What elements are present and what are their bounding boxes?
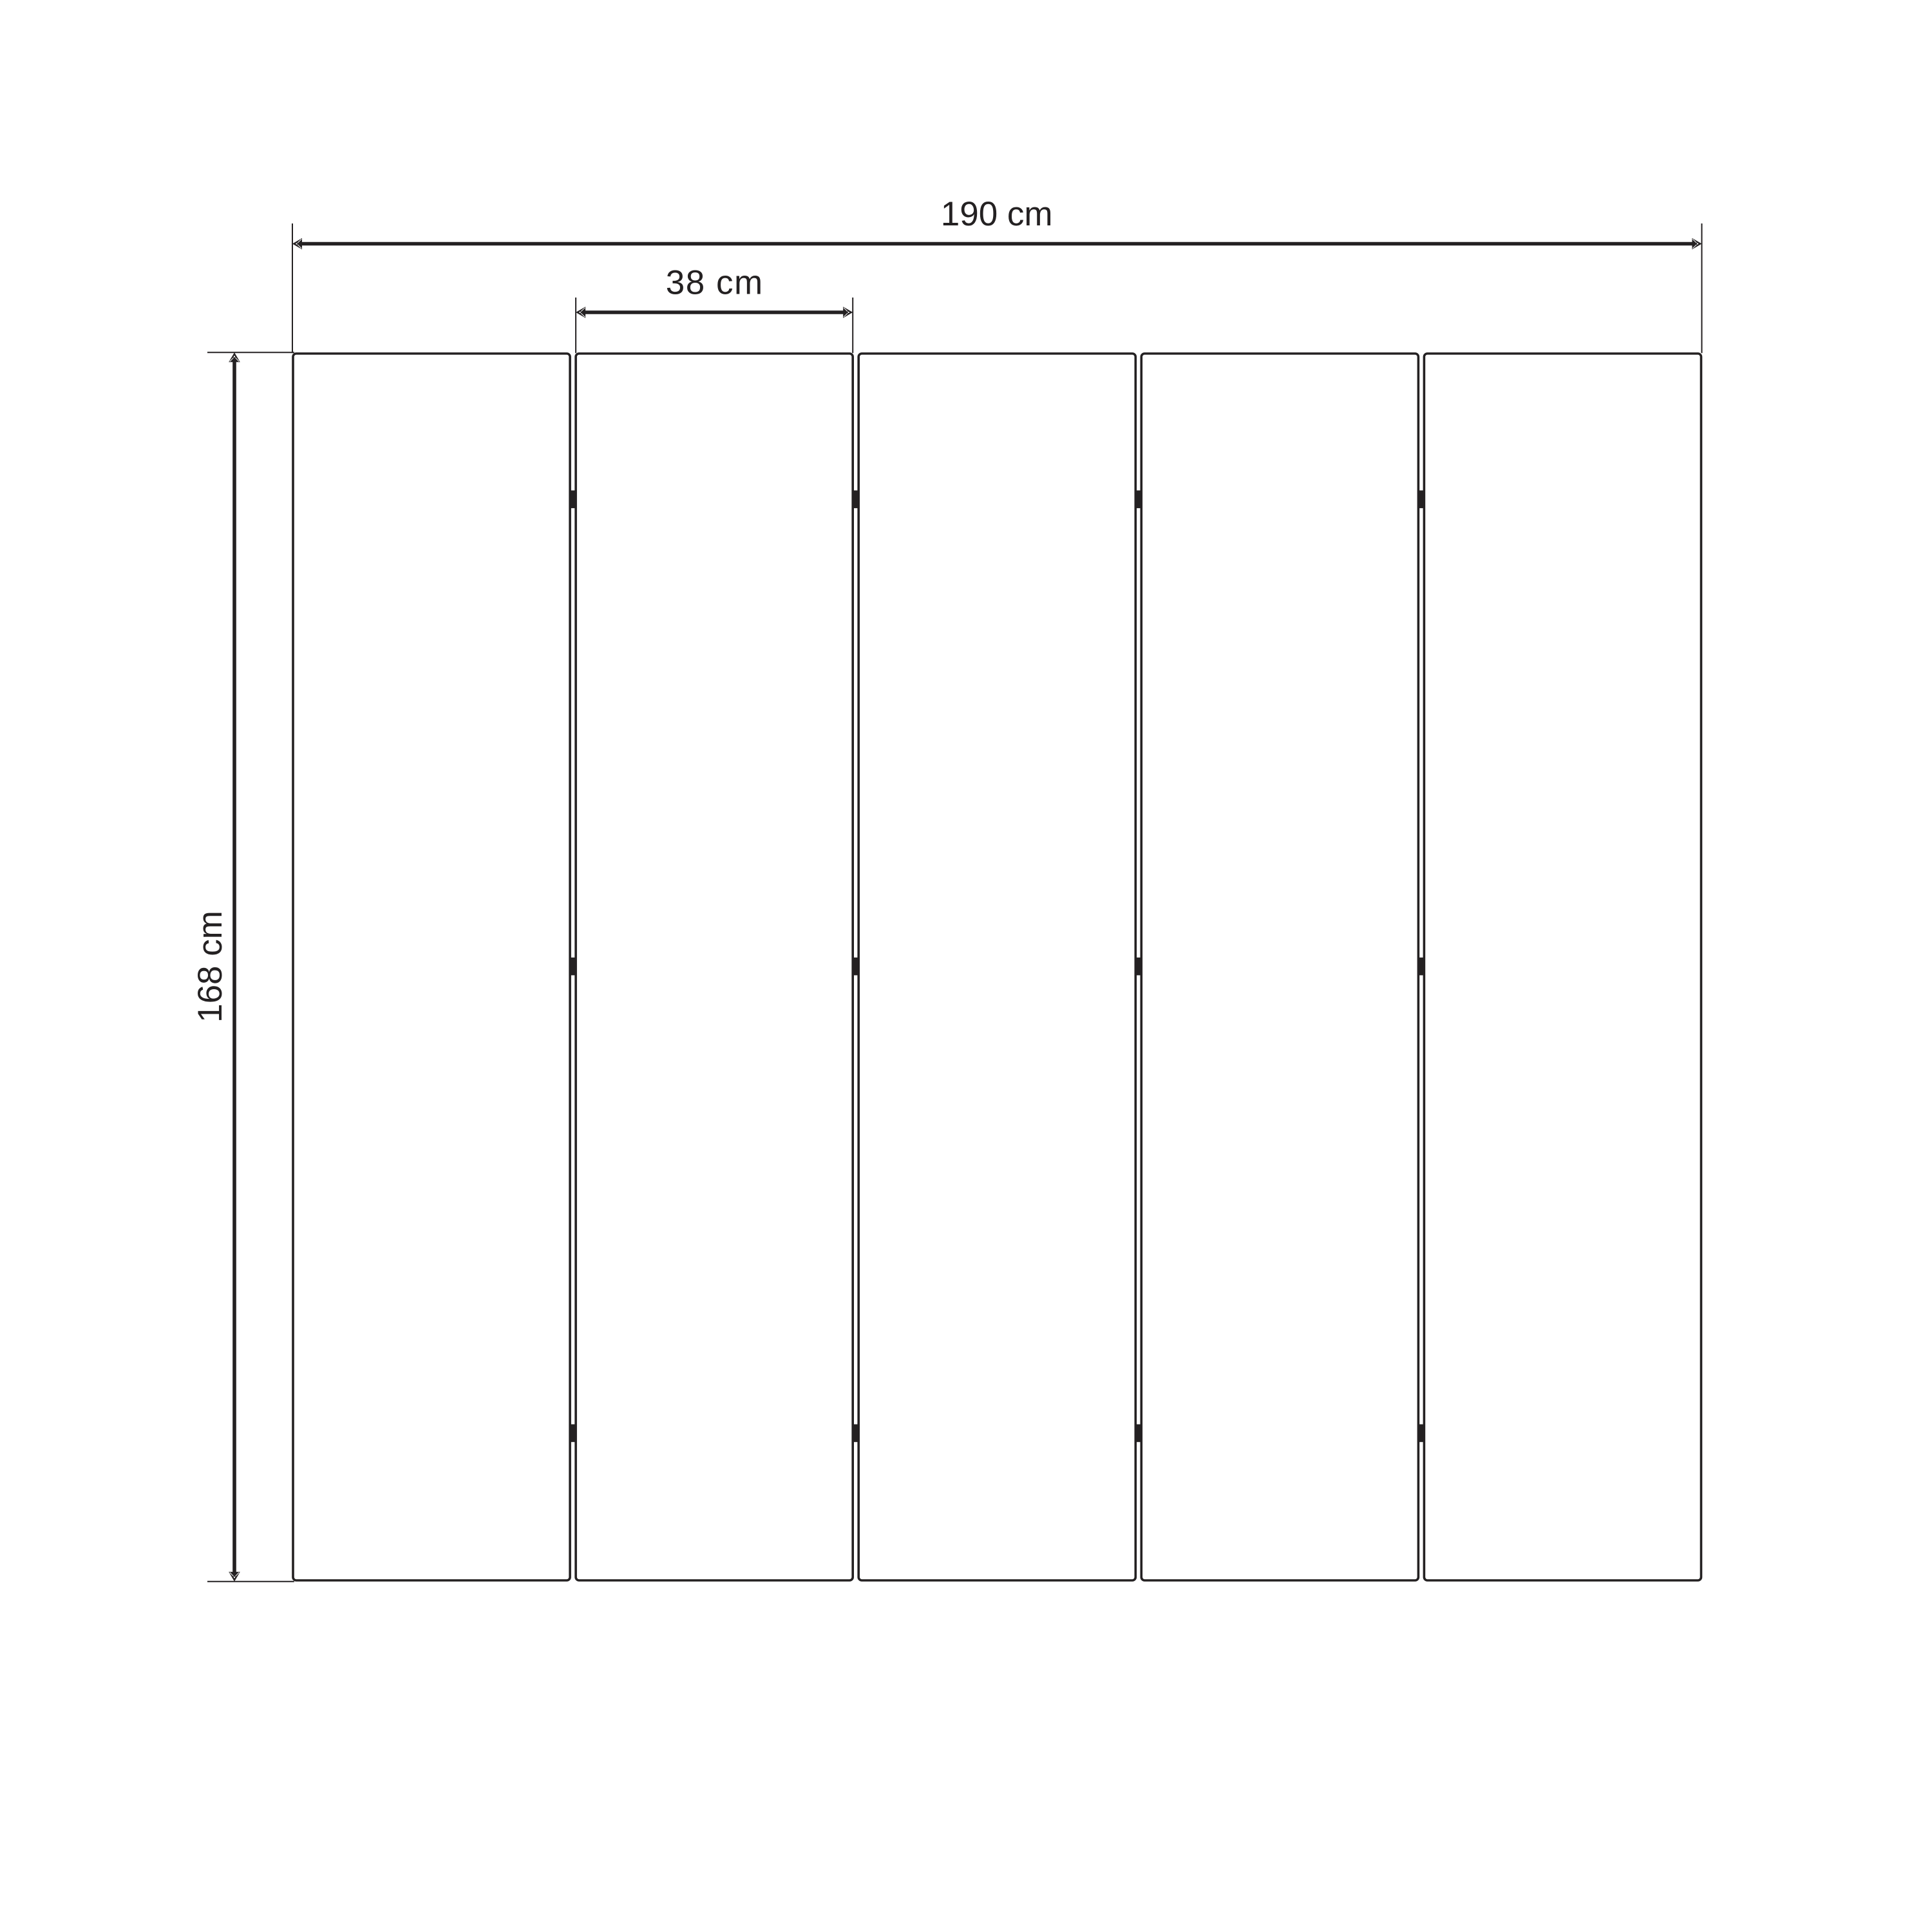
svg-text:168 cm: 168 cm — [191, 911, 229, 1023]
svg-text:38 cm: 38 cm — [666, 264, 764, 302]
svg-text:190 cm: 190 cm — [941, 195, 1053, 233]
